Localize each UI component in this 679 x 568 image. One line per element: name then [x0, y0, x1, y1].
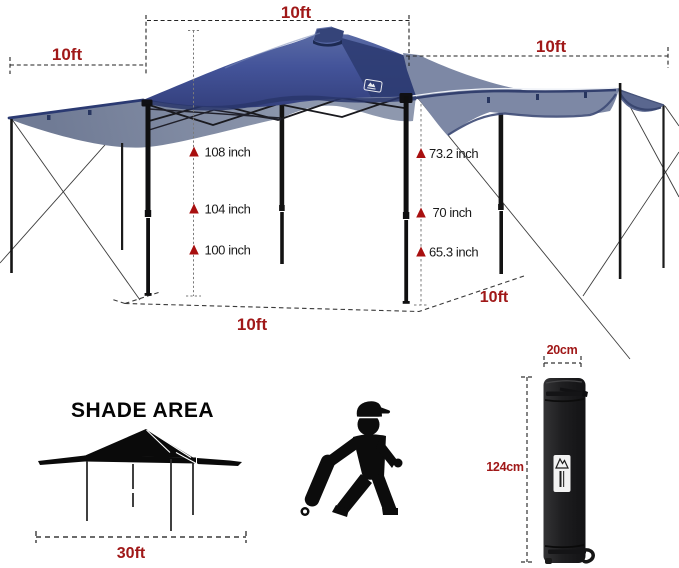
svg-text:30ft: 30ft: [117, 545, 146, 562]
svg-text:124cm: 124cm: [486, 460, 524, 474]
svg-text:70 inch: 70 inch: [433, 205, 472, 220]
svg-text:10ft: 10ft: [52, 45, 83, 64]
svg-text:10ft: 10ft: [281, 3, 312, 22]
svg-text:10ft: 10ft: [480, 289, 509, 306]
svg-text:108 inch: 108 inch: [205, 145, 251, 160]
svg-text:65.3 inch: 65.3 inch: [429, 245, 478, 260]
svg-text:10ft: 10ft: [237, 315, 268, 334]
svg-text:100 inch: 100 inch: [205, 243, 251, 258]
svg-text:20cm: 20cm: [547, 343, 578, 357]
svg-text:104 inch: 104 inch: [205, 202, 251, 217]
svg-text:10ft: 10ft: [536, 37, 567, 56]
svg-text:73.2 inch: 73.2 inch: [429, 146, 478, 161]
svg-text:SHADE AREA: SHADE AREA: [71, 399, 214, 422]
